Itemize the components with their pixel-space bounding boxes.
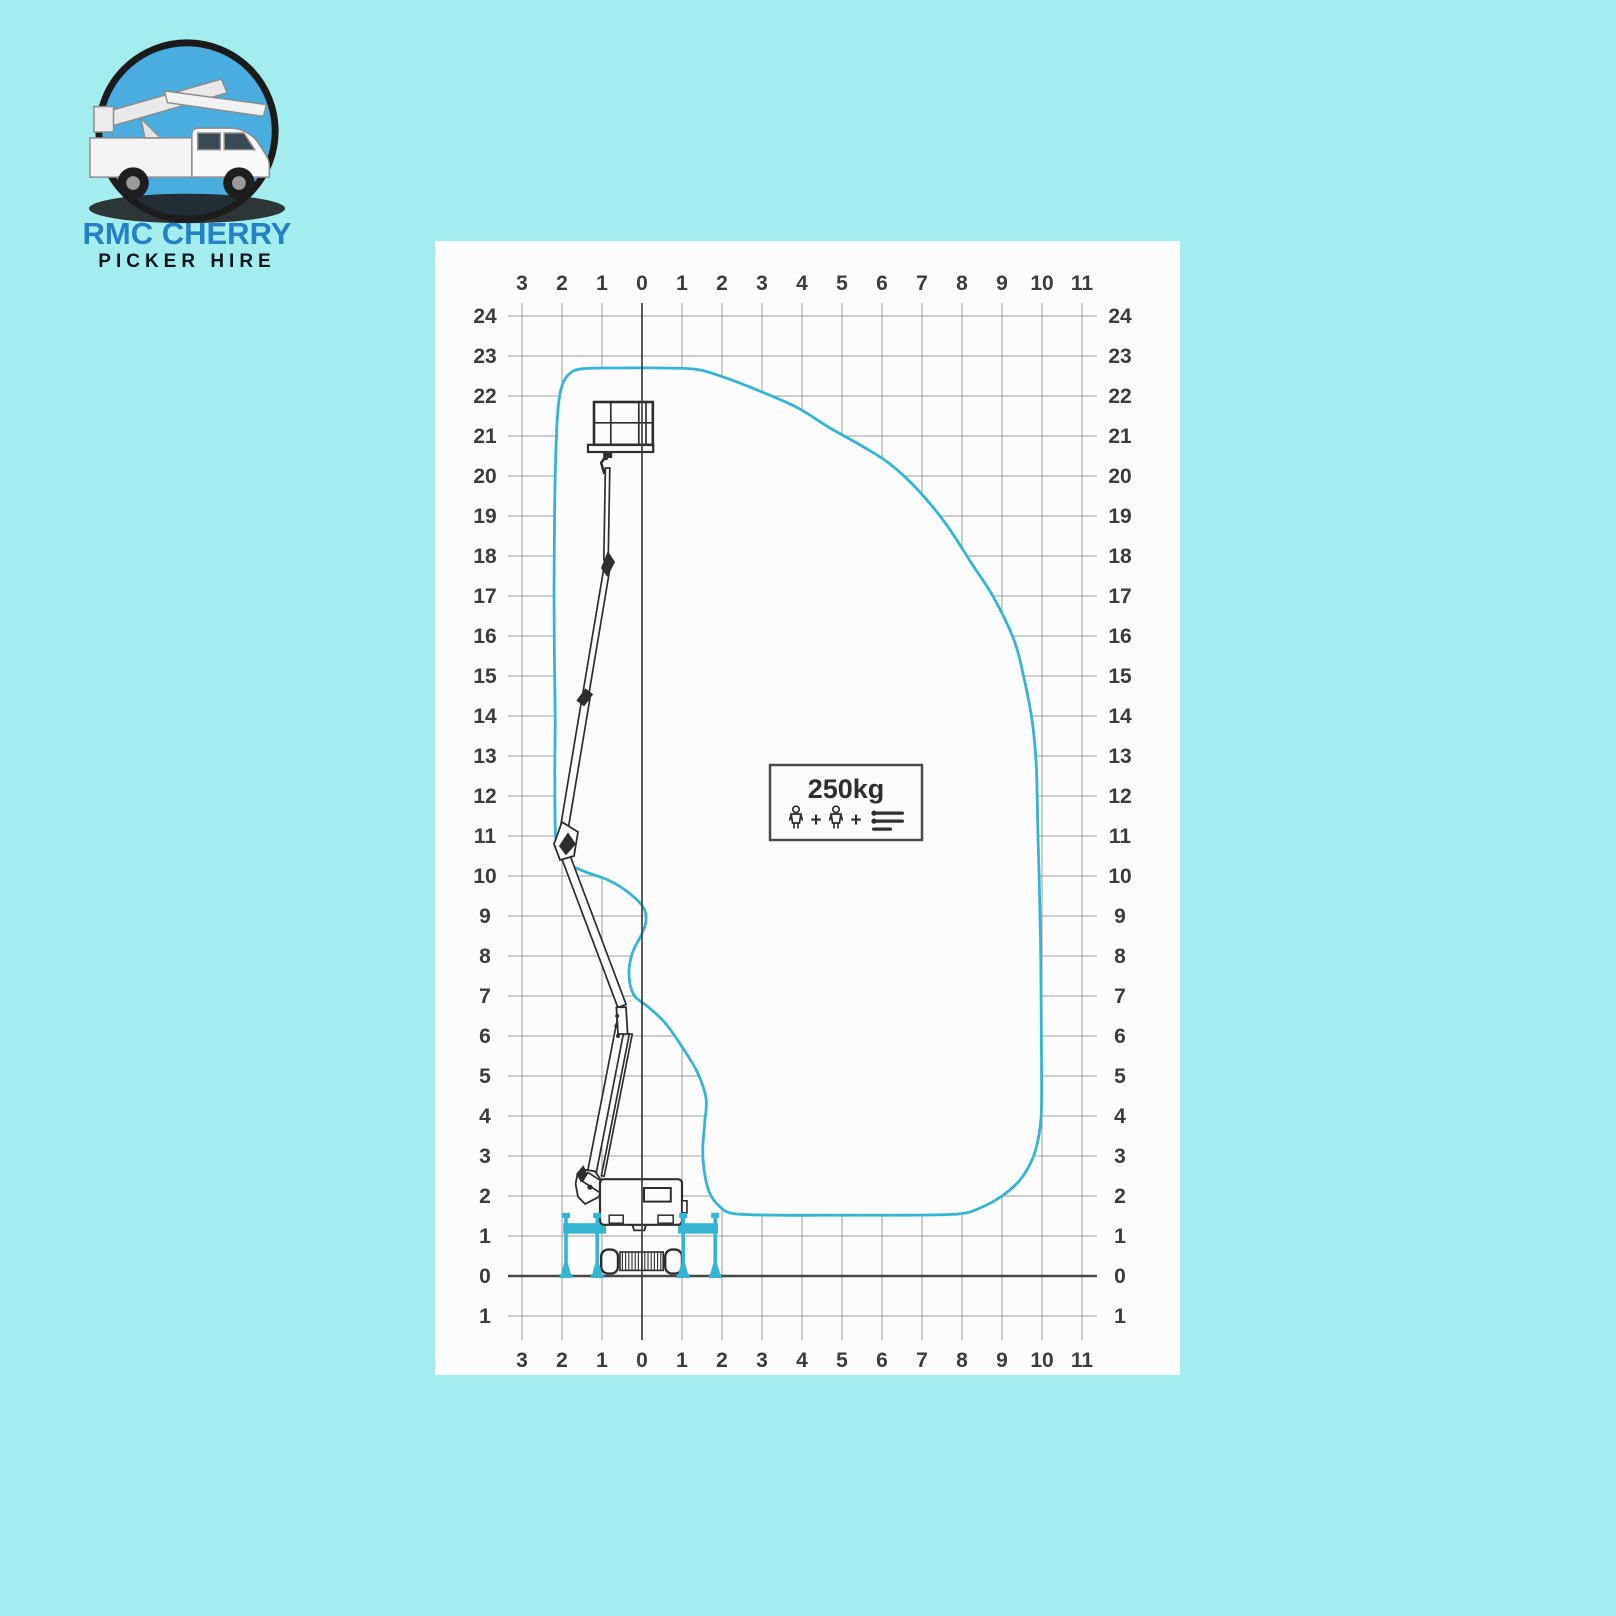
joint-pin [587, 1185, 592, 1190]
y-axis-label-left: 8 [479, 945, 491, 968]
x-axis-label-top: 1 [596, 272, 608, 295]
y-axis-label-right: 7 [1114, 985, 1126, 1008]
x-axis-label-top: 1 [676, 272, 688, 295]
x-axis-label-bottom: 3 [756, 1349, 768, 1372]
y-axis-label-left: 5 [479, 1065, 491, 1088]
y-axis-label-right: 20 [1108, 465, 1131, 488]
y-axis-label-right: 1 [1114, 1305, 1126, 1328]
x-axis-label-bottom: 2 [556, 1349, 568, 1372]
y-axis-label-right: 0 [1114, 1265, 1126, 1288]
x-axis-label-top: 5 [836, 272, 848, 295]
y-axis-label-left: 1 [479, 1305, 491, 1328]
y-axis-label-right: 21 [1108, 425, 1132, 448]
logo-subtitle: PICKER HIRE [70, 252, 304, 271]
x-axis-label-top: 10 [1030, 272, 1053, 295]
y-axis-label-left: 3 [479, 1145, 491, 1168]
y-axis-label-left: 22 [473, 385, 496, 408]
y-axis-label-right: 17 [1108, 585, 1131, 608]
x-axis-label-top: 9 [996, 272, 1008, 295]
y-axis-label-left: 4 [479, 1105, 491, 1128]
y-axis-label-left: 20 [473, 465, 496, 488]
outrigger-leg [709, 1213, 722, 1278]
x-axis-label-bottom: 1 [676, 1349, 688, 1372]
y-axis-label-left: 1 [479, 1225, 491, 1248]
x-axis-label-top: 3 [756, 272, 768, 295]
load-capacity-label: 250kg [808, 774, 885, 804]
y-axis-label-left: 19 [473, 505, 496, 528]
wheel [601, 1250, 618, 1274]
y-axis-label-right: 22 [1108, 385, 1131, 408]
outrigger-beam-left [563, 1223, 606, 1233]
y-axis-label-right: 5 [1114, 1065, 1126, 1088]
x-axis-label-bottom: 7 [916, 1349, 928, 1372]
x-axis-label-top: 6 [876, 272, 888, 295]
y-axis-label-right: 23 [1108, 345, 1131, 368]
y-axis-label-left: 16 [473, 625, 496, 648]
y-axis-label-right: 12 [1108, 785, 1131, 808]
y-axis-label-right: 16 [1108, 625, 1131, 648]
logo-emblem [72, 36, 302, 232]
joint-pin [615, 1014, 619, 1018]
y-axis-label-right: 1 [1114, 1225, 1126, 1248]
y-axis-label-right: 14 [1108, 705, 1132, 728]
logo-title: RMC CHERRY [70, 218, 304, 249]
y-axis-label-right: 2 [1114, 1185, 1126, 1208]
y-axis-label-right: 18 [1108, 545, 1132, 568]
y-axis-label-left: 13 [473, 745, 496, 768]
joint-pin [614, 1024, 618, 1028]
x-axis-label-top: 3 [516, 272, 528, 295]
x-axis-label-top: 4 [796, 272, 808, 295]
y-axis-label-right: 10 [1108, 865, 1131, 888]
plus-sign: + [850, 810, 861, 831]
company-logo: RMC CHERRY PICKER HIRE [70, 36, 304, 271]
y-axis-label-right: 24 [1108, 305, 1132, 328]
boom-section [604, 468, 610, 560]
y-axis-label-left: 2 [479, 1185, 491, 1208]
y-axis-label-right: 13 [1108, 745, 1131, 768]
reach-diagram-panel: 3322110011223344556677889910101111242423… [435, 241, 1180, 1375]
x-axis-label-top: 11 [1071, 272, 1094, 295]
x-axis-label-bottom: 0 [636, 1349, 648, 1372]
y-axis-label-right: 4 [1114, 1105, 1126, 1128]
x-axis-label-top: 8 [956, 272, 968, 295]
x-axis-label-bottom: 5 [836, 1349, 848, 1372]
y-axis-label-left: 15 [473, 665, 497, 688]
y-axis-label-left: 11 [474, 825, 497, 848]
y-axis-label-left: 9 [479, 905, 491, 928]
y-axis-label-right: 15 [1108, 665, 1132, 688]
x-axis-label-bottom: 1 [596, 1349, 608, 1372]
y-axis-label-right: 19 [1108, 505, 1131, 528]
y-axis-label-right: 8 [1114, 945, 1126, 968]
x-axis-label-bottom: 3 [516, 1349, 528, 1372]
page-background: RMC CHERRY PICKER HIRE 33221100112233445… [0, 0, 1616, 1616]
joint-pin [616, 1034, 620, 1038]
x-axis-label-bottom: 6 [876, 1349, 888, 1372]
y-axis-label-left: 21 [473, 425, 497, 448]
x-axis-label-bottom: 2 [716, 1349, 728, 1372]
x-axis-label-top: 7 [916, 272, 928, 295]
x-axis-label-bottom: 8 [956, 1349, 968, 1372]
y-axis-label-left: 12 [473, 785, 496, 808]
x-axis-label-top: 0 [636, 272, 648, 295]
y-axis-label-left: 6 [479, 1025, 491, 1048]
joint-pin [563, 842, 568, 847]
y-axis-label-left: 18 [473, 545, 497, 568]
plus-sign: + [810, 810, 821, 831]
y-axis-label-left: 14 [473, 705, 497, 728]
y-axis-label-left: 0 [479, 1265, 491, 1288]
y-axis-label-left: 7 [479, 985, 491, 1008]
x-axis-label-top: 2 [556, 272, 568, 295]
x-axis-label-bottom: 4 [796, 1349, 808, 1372]
y-axis-label-right: 11 [1109, 825, 1132, 848]
joint-pin [605, 560, 609, 564]
x-axis-label-top: 2 [716, 272, 728, 295]
y-axis-label-right: 9 [1114, 905, 1126, 928]
y-axis-label-right: 6 [1114, 1025, 1126, 1048]
y-axis-label-left: 24 [473, 305, 497, 328]
x-axis-label-bottom: 9 [996, 1349, 1008, 1372]
y-axis-label-left: 17 [473, 585, 496, 608]
x-axis-label-bottom: 11 [1071, 1349, 1094, 1372]
y-axis-label-left: 10 [473, 865, 496, 888]
working-envelope-diagram: 3322110011223344556677889910101111242423… [435, 241, 1180, 1375]
y-axis-label-left: 23 [473, 345, 496, 368]
x-axis-label-bottom: 10 [1030, 1349, 1053, 1372]
y-axis-label-right: 3 [1114, 1145, 1126, 1168]
